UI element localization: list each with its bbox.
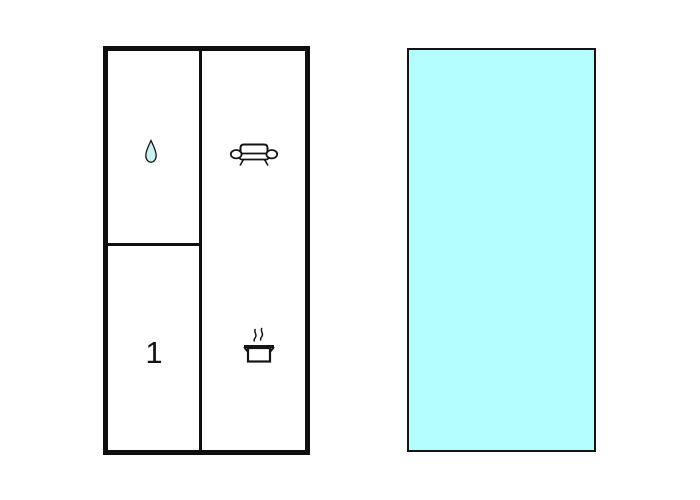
sofa-icon (230, 142, 278, 168)
pool-area (407, 48, 596, 452)
bedroom-count-label: 1 (124, 335, 184, 371)
water-drop-shape (146, 141, 156, 163)
interior-wall-horizontal (108, 243, 202, 246)
floorplan: 1 (103, 46, 310, 455)
interior-wall-vertical (199, 51, 202, 450)
cooking-pot-icon (238, 325, 280, 367)
water-drop-icon (144, 139, 158, 164)
scene: 1 (0, 0, 700, 500)
